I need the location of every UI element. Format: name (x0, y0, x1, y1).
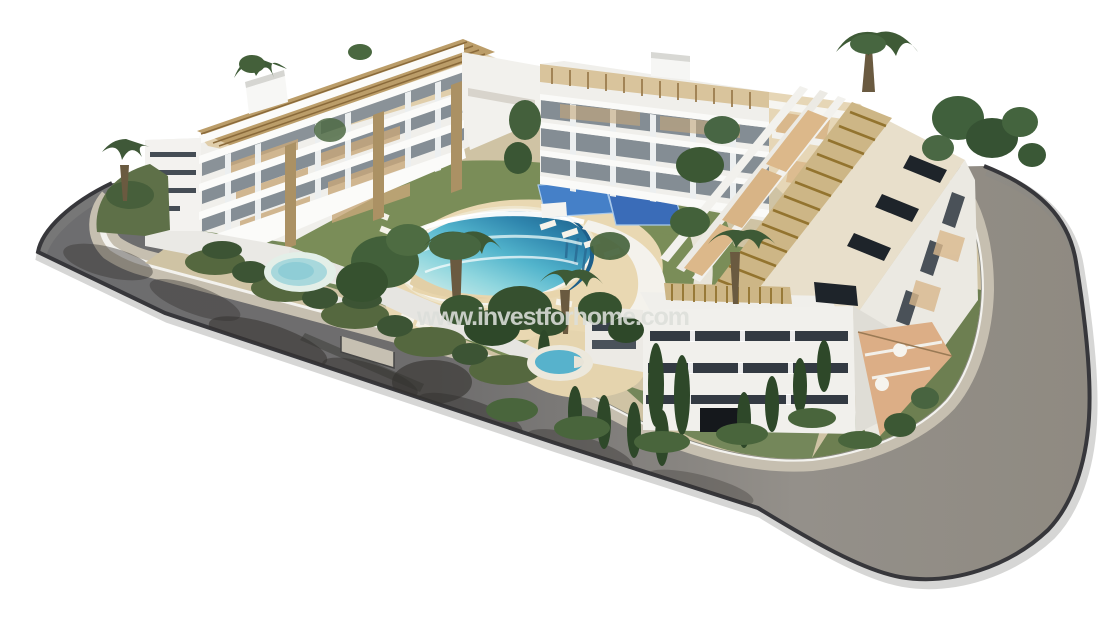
svg-text:www.investforhome.com: www.investforhome.com (416, 303, 690, 331)
